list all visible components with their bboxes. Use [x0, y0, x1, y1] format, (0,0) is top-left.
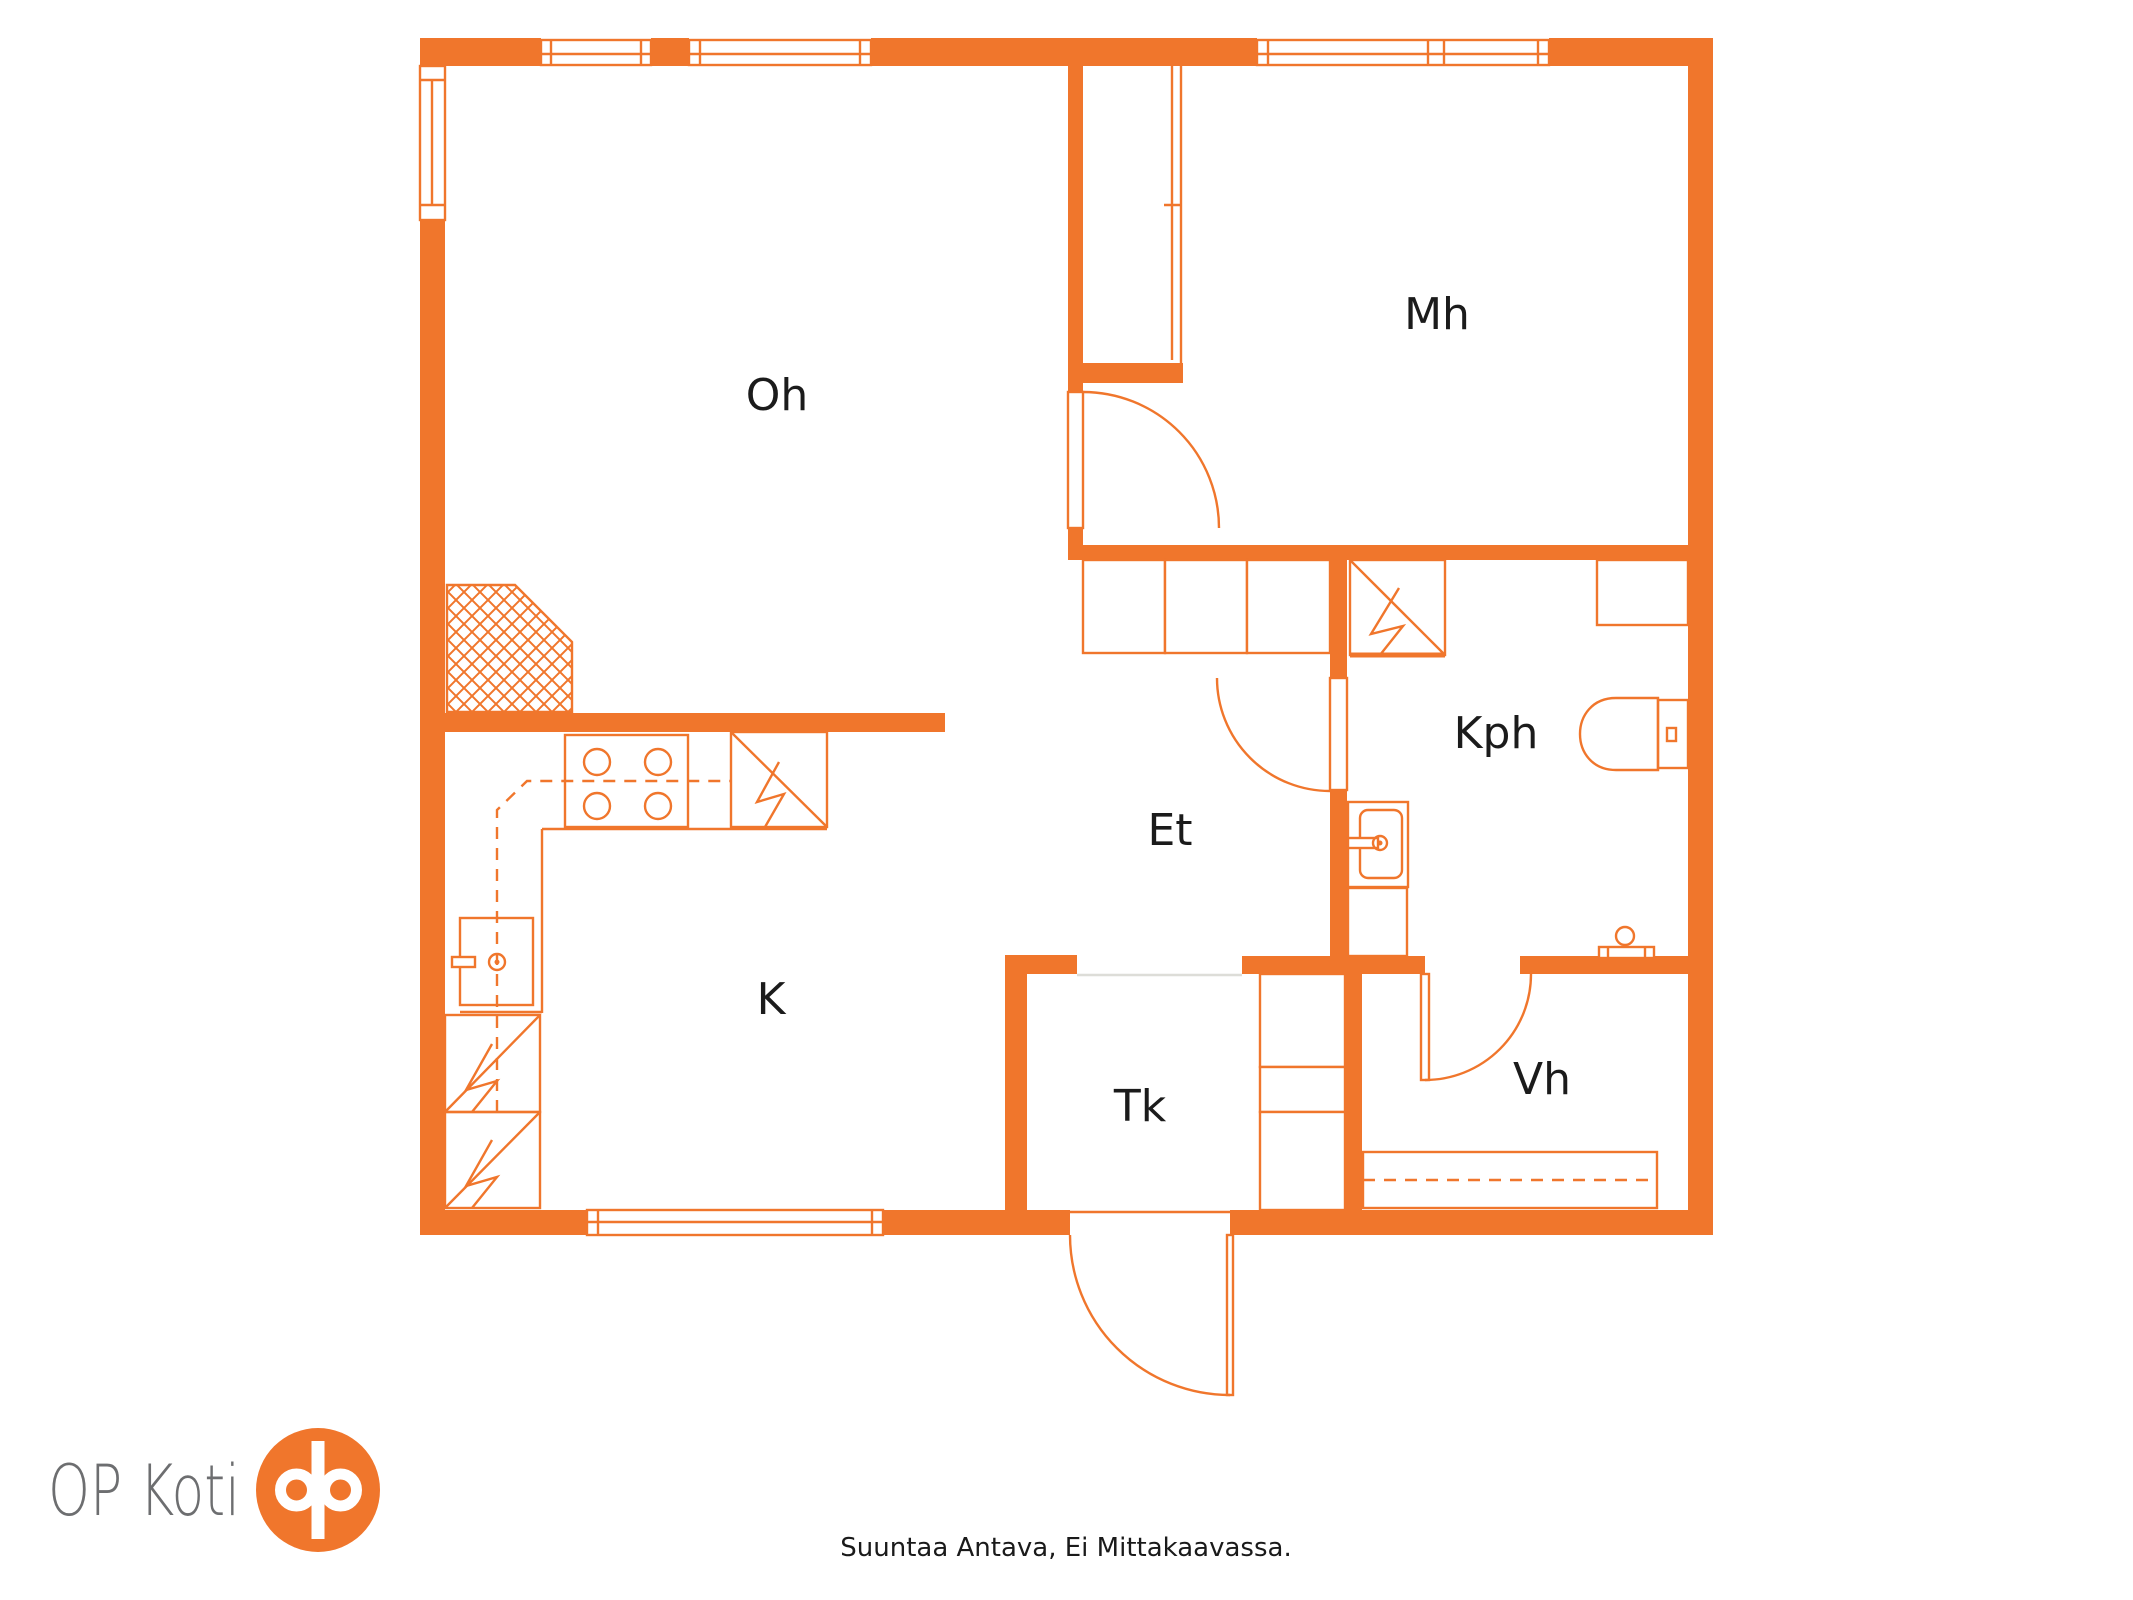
shelf-box [1260, 974, 1345, 1067]
wall-et-kph-lower [1330, 790, 1347, 956]
shelf-box [1260, 1112, 1345, 1210]
hall-wardrobes [1083, 560, 1330, 653]
wall-kitchen [445, 713, 945, 732]
window-mh [1257, 40, 1549, 65]
door-mh-arc [1083, 392, 1219, 528]
wall-tk-top-stub [1027, 955, 1077, 974]
freezer-icon [445, 1112, 540, 1208]
tk-shelves [1260, 974, 1345, 1210]
wall-tk-left [1005, 955, 1027, 1210]
shower-icon [1350, 560, 1445, 655]
wall-middle-horizontal [1068, 545, 1688, 560]
sliding-door-closet [1164, 66, 1181, 363]
window-top-a [541, 40, 651, 65]
door-entrance-leaf [1227, 1235, 1233, 1395]
op-logo-icon [256, 1428, 380, 1552]
fridge-icon [445, 1015, 540, 1112]
washbasin-icon [1348, 802, 1408, 887]
room-label-et: Et [1147, 805, 1192, 856]
wall-et-kph-upper [1330, 560, 1347, 678]
toilet-icon [1580, 698, 1688, 770]
appliance-icon [731, 732, 827, 827]
wall-exterior-right [1688, 38, 1713, 1235]
door-kph-arc [1217, 678, 1330, 791]
floorplan-page: Oh Mh Kph Et K Tk Vh OP Koti Suuntaa Ant… [0, 0, 2133, 1600]
wall-openings [420, 38, 1549, 1235]
room-label-vh: Vh [1513, 1054, 1571, 1105]
vh-bench [1363, 1152, 1657, 1208]
window-left [420, 66, 445, 220]
room-label-k: K [757, 974, 787, 1025]
door-entrance-arc [1070, 1235, 1230, 1395]
op-koti-logo: OP Koti [48, 1428, 380, 1552]
door-mh [1068, 392, 1219, 528]
door-mh-leaf [1068, 392, 1083, 528]
fireplace-hatch-block [447, 585, 572, 712]
door-kph-leaf [1330, 678, 1347, 790]
bathroom-fixtures [1348, 560, 1688, 958]
door-vh-leaf [1421, 974, 1429, 1080]
room-label-tk: Tk [1113, 1081, 1167, 1132]
towel-hook-icon [1599, 927, 1654, 958]
room-label-kph: Kph [1454, 708, 1539, 759]
opening-door-bottom [1070, 1210, 1230, 1235]
bathroom-cabinet [1348, 888, 1407, 956]
window-bottom [587, 1210, 883, 1235]
kitchen-fixtures [445, 732, 827, 1208]
door-kph [1217, 678, 1347, 791]
floorplan-drawing: Oh Mh Kph Et K Tk Vh OP Koti Suuntaa Ant… [0, 0, 2133, 1600]
top-cabinet [1597, 560, 1688, 625]
room-label-mh: Mh [1404, 289, 1470, 340]
room-label-oh: Oh [746, 370, 809, 421]
wardrobe-box [1165, 560, 1247, 653]
windows [420, 40, 1549, 1235]
window-top-b [689, 40, 871, 65]
disclaimer-text: Suuntaa Antava, Ei Mittakaavassa. [840, 1533, 1291, 1563]
wall-tk-vh [1345, 974, 1362, 1210]
logo-text: OP Koti [48, 1450, 240, 1532]
wardrobe-box [1083, 560, 1165, 653]
shelf-box [1260, 1067, 1345, 1112]
wall-kph-vh-left [1242, 956, 1425, 974]
wardrobe-box [1247, 560, 1330, 653]
wall-closet-left [1068, 66, 1083, 392]
wall-closet-bottom [1083, 363, 1183, 383]
door-entrance [1070, 1212, 1233, 1395]
sink-icon [452, 918, 533, 1005]
